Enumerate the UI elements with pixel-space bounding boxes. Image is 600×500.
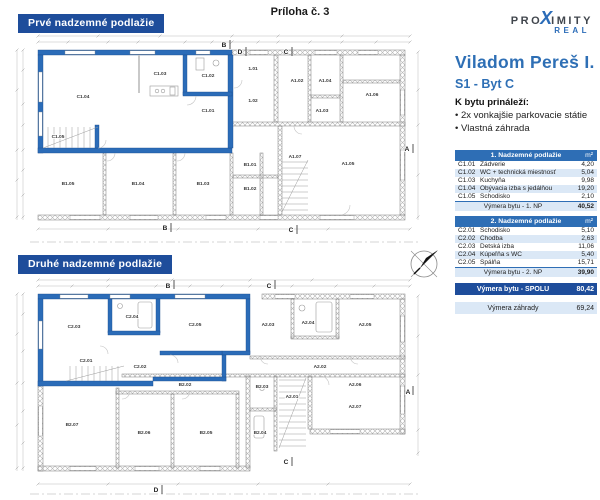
total-area-row: Výmera bytu - SPOLU 80,42	[455, 283, 597, 295]
table-row: C2.05Spálňa15,71	[455, 259, 597, 267]
table-row: C1.04Obývacia izba s jedálňou19,20	[455, 185, 597, 193]
room-label: A1.07	[289, 154, 302, 160]
table-header: 1. Nadzemné podlažie m²	[455, 150, 597, 161]
room-label: A2.07	[349, 404, 362, 410]
table-header-label: 2. Nadzemné podlažie	[491, 218, 562, 225]
floor2-title: Druhé nadzemné podlažie	[18, 255, 172, 274]
room-label: 1.02	[248, 98, 258, 104]
room-label: C1.04	[77, 94, 90, 100]
section-marker: C	[267, 283, 272, 290]
partitions-light	[138, 55, 140, 93]
windows	[39, 51, 404, 219]
unit-label: m²	[585, 218, 593, 225]
room-label: C1.03	[154, 71, 167, 77]
section-marker: D	[154, 487, 159, 494]
table-row: C1.02WC + technická miestnosť5,04	[455, 169, 597, 177]
table-summary-row: Výmera bytu - 2. NP39,90	[455, 267, 597, 277]
room-label: C2.05	[189, 322, 202, 328]
table-row: C1.05Schodisko2,10	[455, 193, 597, 201]
room-label: A1.03	[316, 108, 329, 114]
room-label: A2.06	[349, 382, 362, 388]
table-summary-row: Výmera bytu - 1. NP40,52	[455, 201, 597, 211]
room-label: B2.02	[179, 382, 192, 388]
table-row: C2.04Kúpeľňa s WC5,40	[455, 251, 597, 259]
room-label: A2.02	[314, 364, 327, 370]
proximity-logo: PROXIMITY REAL	[511, 12, 593, 35]
table-header: 2. Nadzemné podlažie m²	[455, 216, 597, 227]
room-label: B2.07	[66, 422, 79, 428]
room-label: B1.03	[197, 181, 210, 187]
section-markers: B D C A B C	[163, 40, 413, 234]
room-label: C1.05	[52, 134, 65, 140]
room-label: C2.04	[126, 314, 139, 320]
room-label: A2.05	[359, 322, 372, 328]
section-marker: A	[406, 389, 411, 396]
room-labels: C1.04 C1.03 C1.02 C1.01 C1.05 1.01 1.02 …	[52, 66, 379, 192]
room-label: A2.01	[286, 394, 299, 400]
section-marker: C	[289, 227, 294, 234]
room-label: C2.03	[68, 324, 81, 330]
unit-label: m²	[585, 152, 593, 159]
table-header-label: 1. Nadzemné podlažie	[491, 152, 562, 159]
room-label: A1.05	[342, 161, 355, 167]
table-row: C1.01Zádverie4,20	[455, 161, 597, 169]
room-label: C2.02	[134, 364, 147, 370]
attachment-label: Príloha č. 3	[240, 6, 360, 18]
document-page: Príloha č. 3 Prvé nadzemné podlažie	[0, 0, 600, 500]
section-marker: B	[163, 225, 168, 232]
floor2-plan: C2.03 C2.04 C2.05 C2.02 C2.01 A2.03 A2.0…	[10, 276, 445, 498]
room-label: C1.01	[202, 108, 215, 114]
section-marker: A	[405, 146, 410, 153]
table-row: C2.02Chodba2,63	[455, 235, 597, 243]
room-label: B2.05	[200, 430, 213, 436]
room-label: C2.01	[80, 358, 93, 364]
room-label: B2.06	[138, 430, 151, 436]
table-row: C1.03Kuchyňa9,98	[455, 177, 597, 185]
list-item: • 2x vonkajšie parkovacie státie	[455, 110, 587, 121]
garden-area-row: Výmera záhrady 69,24	[455, 302, 597, 314]
room-label: A1.02	[291, 78, 304, 84]
room-label: 1.01	[248, 66, 258, 72]
doors	[98, 80, 350, 215]
section-marker: C	[284, 49, 289, 56]
logo-pro: PRO	[511, 15, 542, 27]
compass-icon	[406, 246, 442, 282]
table-row: C2.01Schodisko5,10	[455, 227, 597, 235]
room-label: A1.06	[366, 92, 379, 98]
section-marker: B	[166, 283, 171, 290]
project-title: Viladom Pereš I.	[455, 52, 595, 73]
room-label: A2.03	[262, 322, 275, 328]
section-marker: D	[238, 49, 243, 56]
room-label: A1.04	[319, 78, 332, 84]
section-marker: B	[222, 42, 227, 49]
room-label: A2.04	[302, 320, 315, 326]
area-table-2np: 2. Nadzemné podlažie m² C2.01Schodisko5,…	[455, 216, 597, 277]
room-label: B2.03	[256, 384, 269, 390]
room-label: B2.04	[254, 430, 267, 436]
table-row: C2.03Detská izba11,06	[455, 243, 597, 251]
room-label: B1.05	[62, 181, 75, 187]
floor1-plan: C1.04 C1.03 C1.02 C1.01 C1.05 1.01 1.02 …	[10, 30, 445, 256]
includes-heading: K bytu prináleží:	[455, 97, 529, 108]
unit-subtitle: S1 - Byt C	[455, 77, 514, 91]
section-markers: B C A C D	[154, 280, 413, 494]
room-label: B1.04	[132, 181, 145, 187]
area-table-1np: 1. Nadzemné podlažie m² C1.01Zádverie4,2…	[455, 150, 597, 211]
walls-gray	[38, 50, 405, 220]
room-label: C1.02	[202, 73, 215, 79]
room-label: B1.01	[244, 162, 257, 168]
logo-imity: IMITY	[551, 15, 593, 27]
section-marker: C	[284, 459, 289, 466]
room-label: B1.02	[244, 186, 257, 192]
list-item: • Vlastná záhrada	[455, 123, 530, 134]
